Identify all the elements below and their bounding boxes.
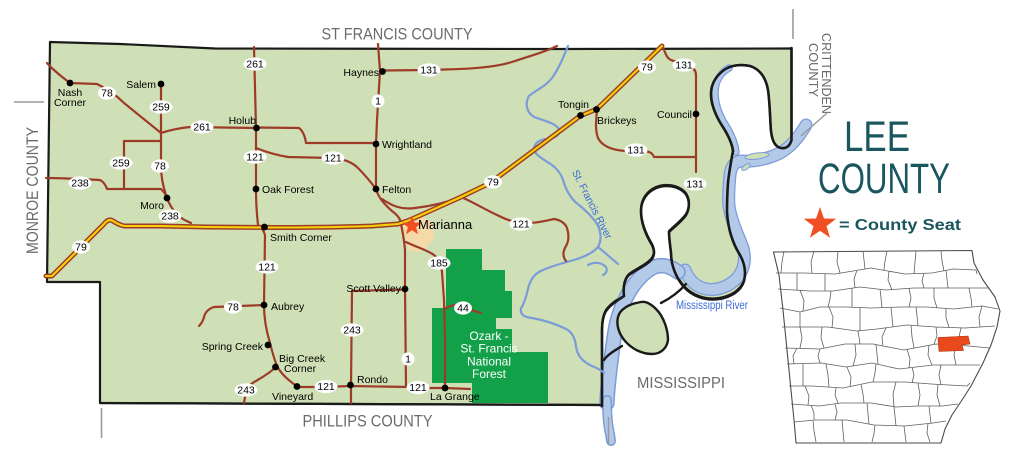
svg-text:121: 121: [317, 381, 335, 393]
svg-text:259: 259: [152, 102, 170, 114]
svg-text:259: 259: [112, 158, 130, 170]
svg-text:121: 121: [324, 153, 342, 165]
svg-text:Holub: Holub: [229, 115, 257, 127]
svg-text:MISSISSIPPI: MISSISSIPPI: [637, 375, 725, 392]
svg-text:1: 1: [405, 354, 411, 366]
svg-text:261: 261: [246, 59, 264, 71]
svg-text:78: 78: [227, 302, 239, 314]
svg-text:Council: Council: [657, 109, 692, 121]
svg-text:COUNTY: COUNTY: [806, 43, 821, 97]
svg-text:Vineyard: Vineyard: [272, 391, 313, 403]
svg-text:121: 121: [258, 262, 276, 274]
svg-text:= County Seat: = County Seat: [839, 217, 962, 234]
svg-text:Tongin: Tongin: [558, 99, 589, 111]
svg-text:Corner: Corner: [284, 363, 317, 375]
svg-text:Salem: Salem: [126, 79, 156, 91]
svg-text:1: 1: [375, 96, 381, 108]
svg-text:Rondo: Rondo: [357, 374, 388, 386]
svg-text:261: 261: [193, 122, 211, 134]
svg-text:131: 131: [420, 65, 438, 77]
svg-text:La Grange: La Grange: [430, 391, 480, 403]
svg-text:Scott Valley: Scott Valley: [346, 283, 401, 295]
svg-text:238: 238: [71, 178, 89, 190]
svg-text:185: 185: [430, 258, 448, 270]
svg-text:Felton: Felton: [382, 184, 411, 196]
svg-text:COUNTY: COUNTY: [818, 155, 950, 203]
svg-text:79: 79: [641, 62, 653, 74]
svg-text:Brickeys: Brickeys: [597, 115, 637, 127]
svg-text:LEE: LEE: [844, 113, 910, 161]
svg-text:Haynes: Haynes: [343, 67, 379, 79]
svg-text:121: 121: [246, 152, 264, 164]
svg-text:79: 79: [75, 242, 87, 254]
svg-text:MONROE COUNTY: MONROE COUNTY: [24, 127, 42, 254]
svg-text:Spring Creek: Spring Creek: [202, 341, 264, 353]
svg-text:PHILLIPS COUNTY: PHILLIPS COUNTY: [303, 413, 433, 431]
svg-text:238: 238: [161, 211, 179, 223]
svg-text:Mississippi River: Mississippi River: [676, 300, 748, 312]
svg-text:ST FRANCIS COUNTY: ST FRANCIS COUNTY: [322, 26, 473, 44]
svg-text:78: 78: [101, 88, 113, 100]
svg-text:Aubrey: Aubrey: [271, 301, 305, 313]
svg-text:243: 243: [343, 325, 361, 337]
svg-text:44: 44: [457, 303, 469, 315]
svg-text:243: 243: [237, 385, 255, 397]
svg-text:131: 131: [686, 179, 704, 191]
svg-text:Marianna: Marianna: [418, 217, 473, 232]
svg-text:131: 131: [627, 145, 645, 157]
svg-text:Smith Corner: Smith Corner: [270, 232, 332, 244]
svg-text:78: 78: [154, 161, 166, 173]
svg-text:Corner: Corner: [54, 97, 87, 109]
svg-text:Oak Forest: Oak Forest: [262, 184, 314, 196]
svg-text:79: 79: [487, 177, 499, 189]
svg-text:Moro: Moro: [140, 200, 164, 212]
svg-text:Wrightland: Wrightland: [382, 139, 432, 151]
svg-text:Forest: Forest: [472, 367, 507, 381]
svg-text:121: 121: [409, 382, 427, 394]
svg-text:121: 121: [512, 219, 530, 231]
svg-text:131: 131: [675, 60, 693, 72]
